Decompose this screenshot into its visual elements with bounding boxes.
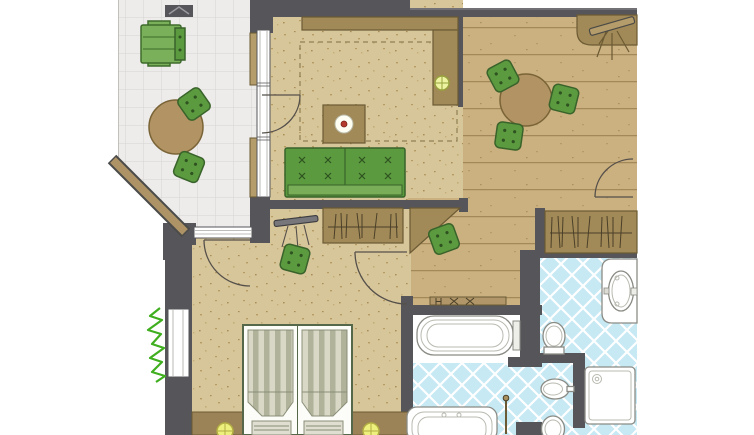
sideboard: [302, 17, 458, 30]
floor-plan-drawing: [0, 0, 754, 435]
terrace-bedroom-window: [194, 227, 252, 238]
bedroom-stool: [279, 243, 311, 275]
bathtub: [417, 316, 520, 355]
toilet-lower: [542, 416, 565, 435]
wall-segment: [516, 422, 542, 435]
duvet-right: [302, 330, 347, 392]
cabinet-column: [433, 30, 458, 105]
toilet: [543, 323, 565, 355]
wall-segment: [508, 357, 542, 367]
wall-plant: [148, 308, 165, 382]
bidet-bowl: [541, 379, 569, 399]
terrace-living-window: [257, 30, 270, 197]
tap-stub: [631, 288, 637, 295]
washbasin-counter: [602, 259, 637, 323]
pillow-right: [304, 421, 343, 435]
sofa: [285, 148, 405, 197]
toilet-bowl: [542, 416, 565, 435]
faucet: [604, 288, 609, 294]
coffee-table: [323, 105, 365, 143]
toilet-tank: [544, 347, 564, 354]
lounger-knob: [179, 49, 182, 52]
towel-radiator: [430, 297, 506, 305]
lounger-armrest: [175, 28, 185, 60]
pillow-left: [252, 421, 291, 435]
shower-tray: [585, 367, 635, 424]
bedside-lamp-left: [217, 423, 233, 435]
wall-segment: [573, 363, 585, 428]
pole-knob: [503, 395, 509, 401]
wall-segment: [250, 192, 270, 243]
lounger-knob: [179, 36, 182, 39]
wall-post: [535, 208, 545, 258]
sun-lounger: [141, 21, 185, 66]
wall-segment: [268, 0, 410, 17]
bedside-lamp-right: [363, 423, 379, 435]
floor-plan-canvas: [0, 0, 754, 435]
duvet-left: [248, 330, 293, 392]
shower-base: [585, 367, 635, 424]
wall-endcap: [459, 198, 468, 212]
sofa-seat-edge: [288, 185, 402, 195]
bathtub-rim: [417, 316, 513, 355]
bidet-spout: [567, 387, 574, 392]
bathtub-faucet-deck: [513, 321, 520, 350]
dining-chair: [548, 83, 580, 115]
dining-chair: [494, 121, 523, 150]
twin-bed: [243, 325, 352, 435]
wall-segment: [520, 250, 540, 363]
built-in-wardrobe: [323, 208, 403, 243]
apple: [341, 121, 347, 127]
wardrobe-right: [545, 211, 637, 253]
bedroom-side-window: [168, 309, 189, 377]
second-bathtub: [407, 407, 497, 435]
wall-divider: [458, 10, 463, 107]
